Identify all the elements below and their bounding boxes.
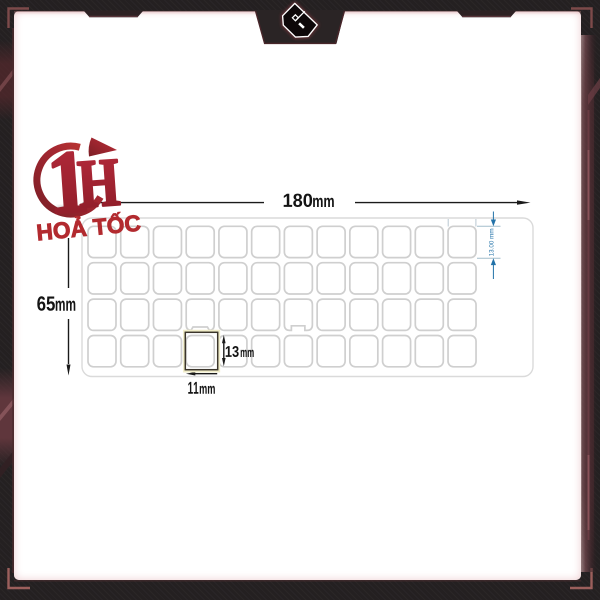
svg-text:13.00 mm: 13.00 mm — [489, 228, 496, 256]
